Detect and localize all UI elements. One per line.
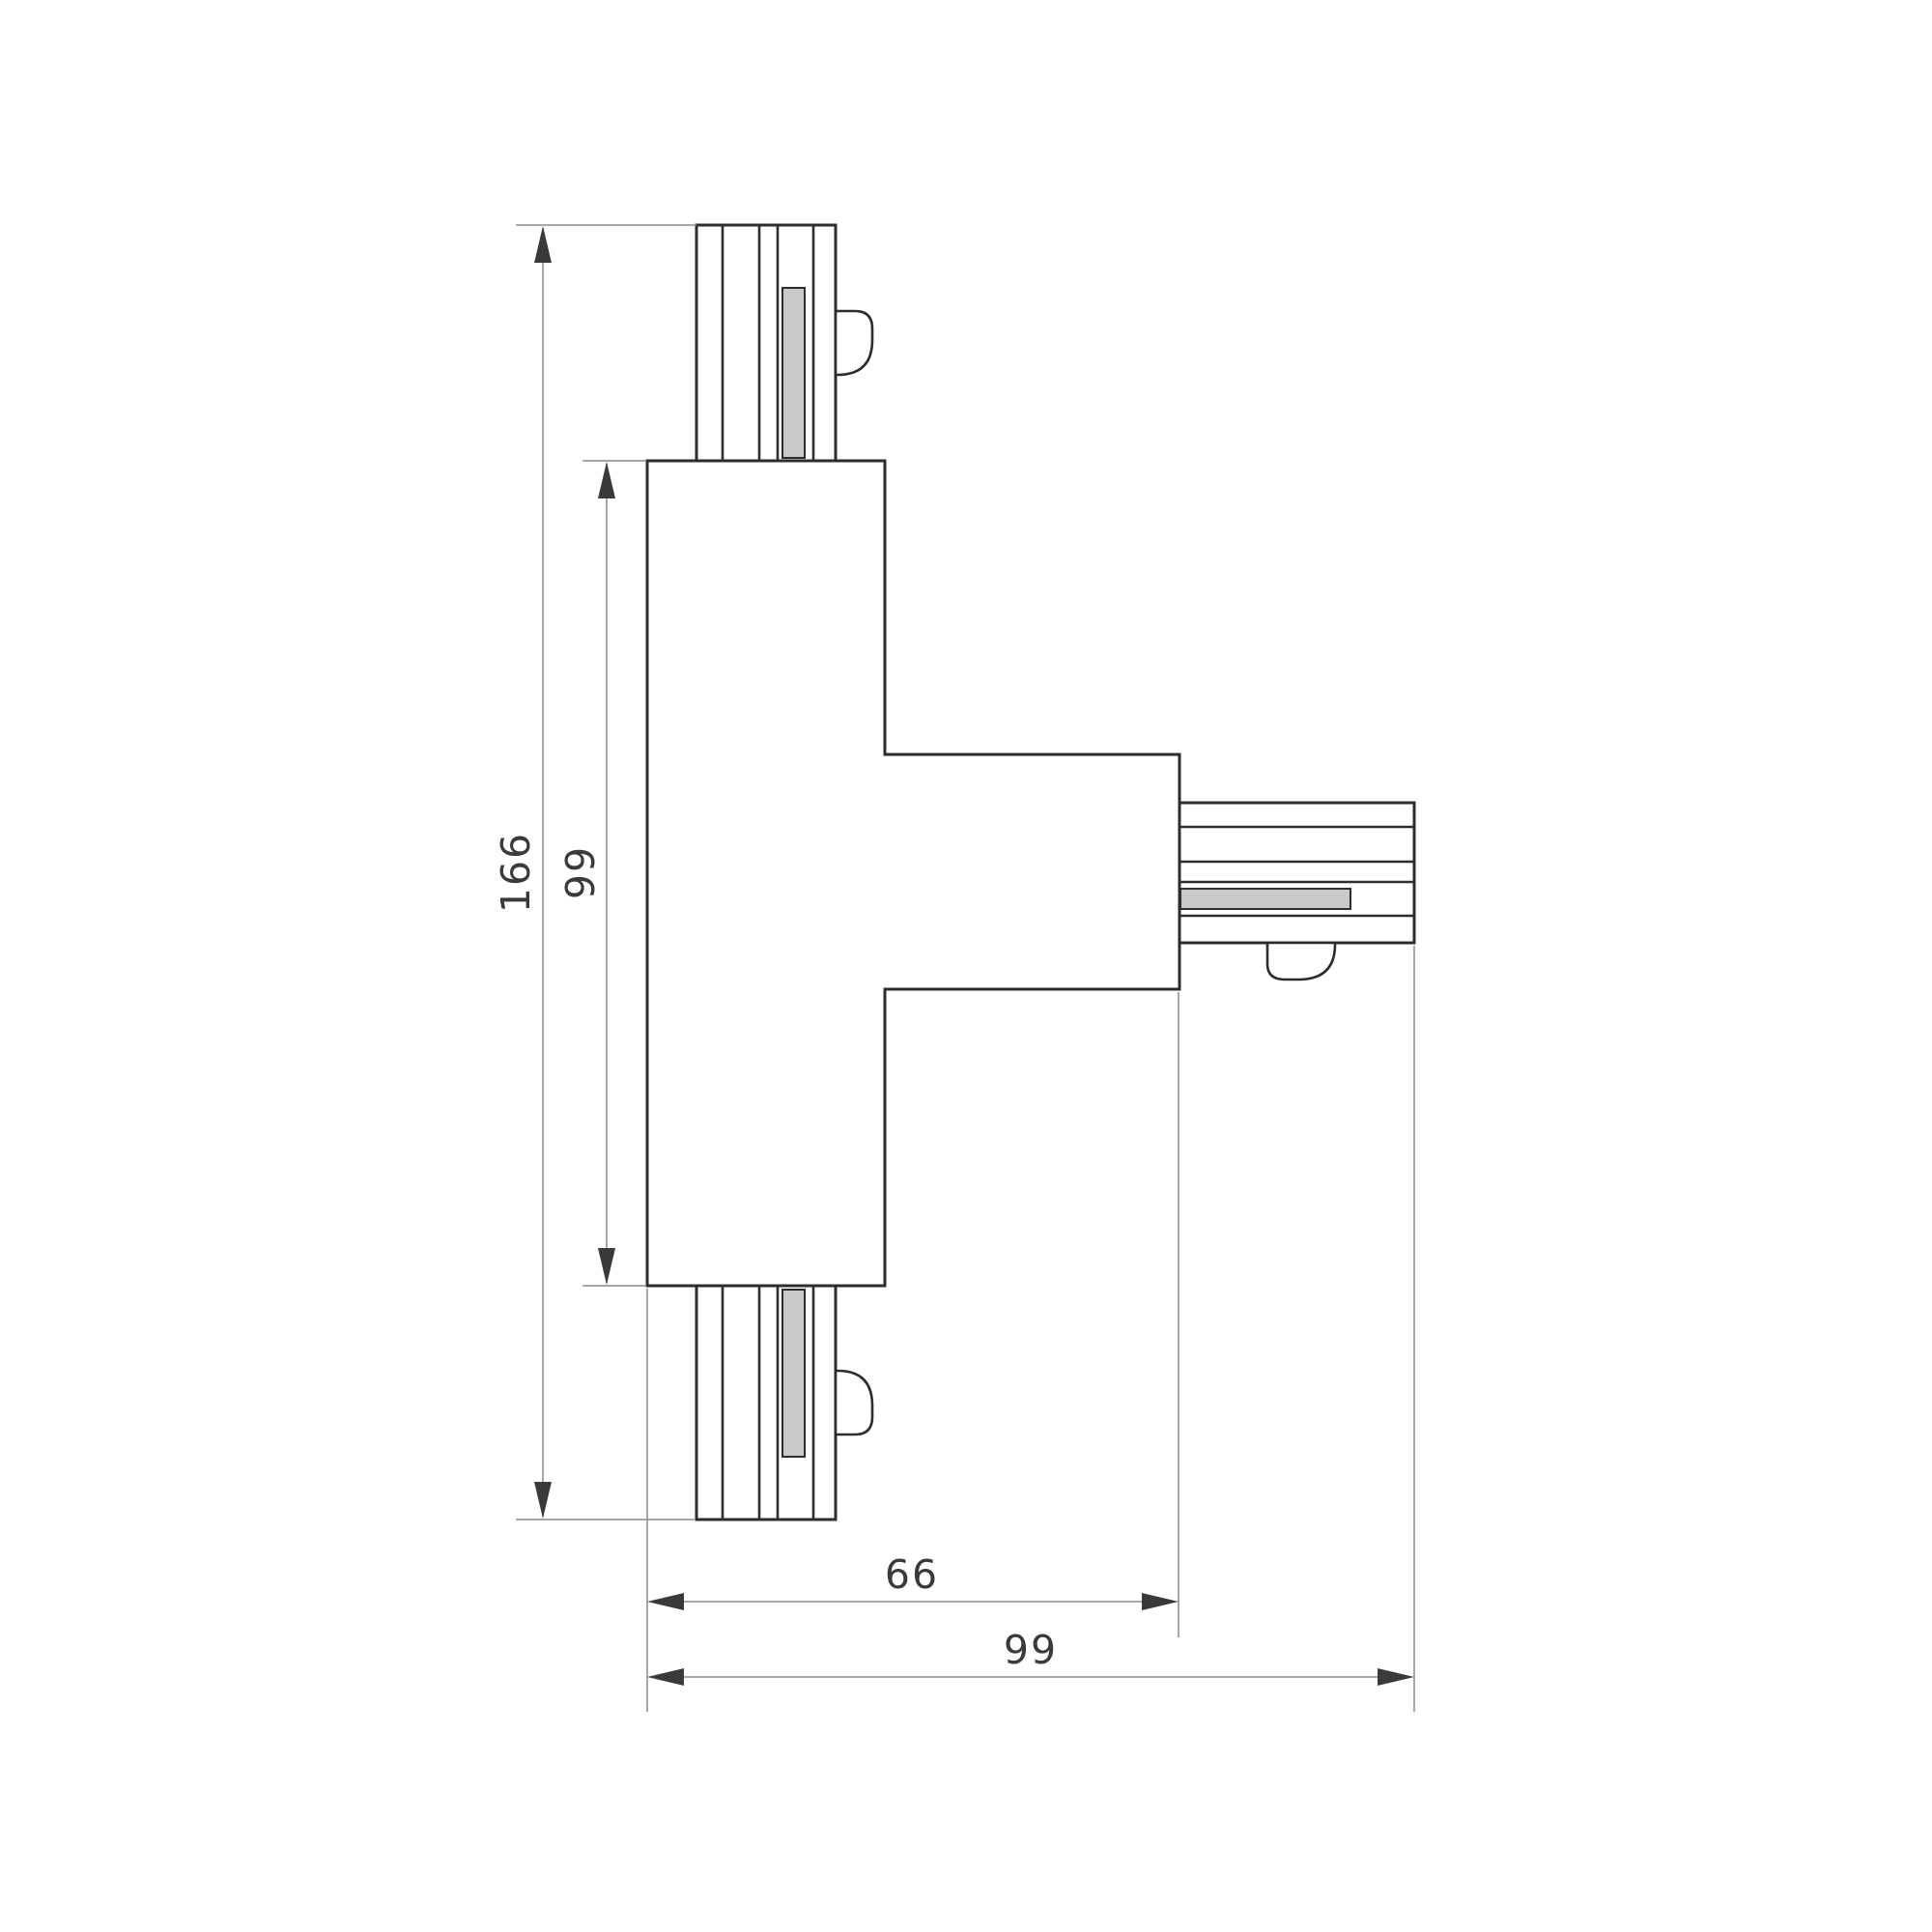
arrow-right-icon xyxy=(1142,1593,1179,1610)
arrow-up-icon xyxy=(598,462,615,498)
dim-label-overall-width: 99 xyxy=(1004,1627,1058,1673)
t-track-connector-drawing: 166 99 66 99 xyxy=(0,0,1932,1932)
arrow-down-icon xyxy=(598,1248,615,1285)
dim-label-stem-height: 99 xyxy=(557,845,604,899)
bottom-track-connector xyxy=(696,1286,872,1520)
right-connector-latch-tab xyxy=(1267,943,1335,980)
arrow-down-icon xyxy=(534,1482,552,1519)
bottom-connector-latch-tab xyxy=(836,1371,872,1435)
arrow-up-icon xyxy=(534,226,552,263)
arrow-left-icon xyxy=(647,1593,684,1610)
top-connector-contact-strip xyxy=(782,288,805,458)
bottom-connector-contact-strip xyxy=(782,1290,805,1457)
right-connector-contact-strip xyxy=(1180,889,1350,909)
t-connector-body-outline xyxy=(647,461,1179,1286)
top-connector-housing xyxy=(696,225,836,461)
technical-drawing-page: 166 99 66 99 xyxy=(0,0,1932,1932)
dim-label-stem-to-arm: 66 xyxy=(885,1551,939,1598)
right-track-connector xyxy=(1179,803,1414,980)
top-connector-latch-tab xyxy=(836,311,872,375)
dimension-stem-height: 99 xyxy=(557,461,646,1286)
arrow-right-icon xyxy=(1378,1668,1414,1686)
dim-label-overall-height: 166 xyxy=(493,832,539,913)
top-track-connector xyxy=(696,225,872,461)
arrow-left-icon xyxy=(647,1668,684,1686)
bottom-connector-housing xyxy=(696,1286,836,1520)
right-connector-housing xyxy=(1179,803,1414,943)
